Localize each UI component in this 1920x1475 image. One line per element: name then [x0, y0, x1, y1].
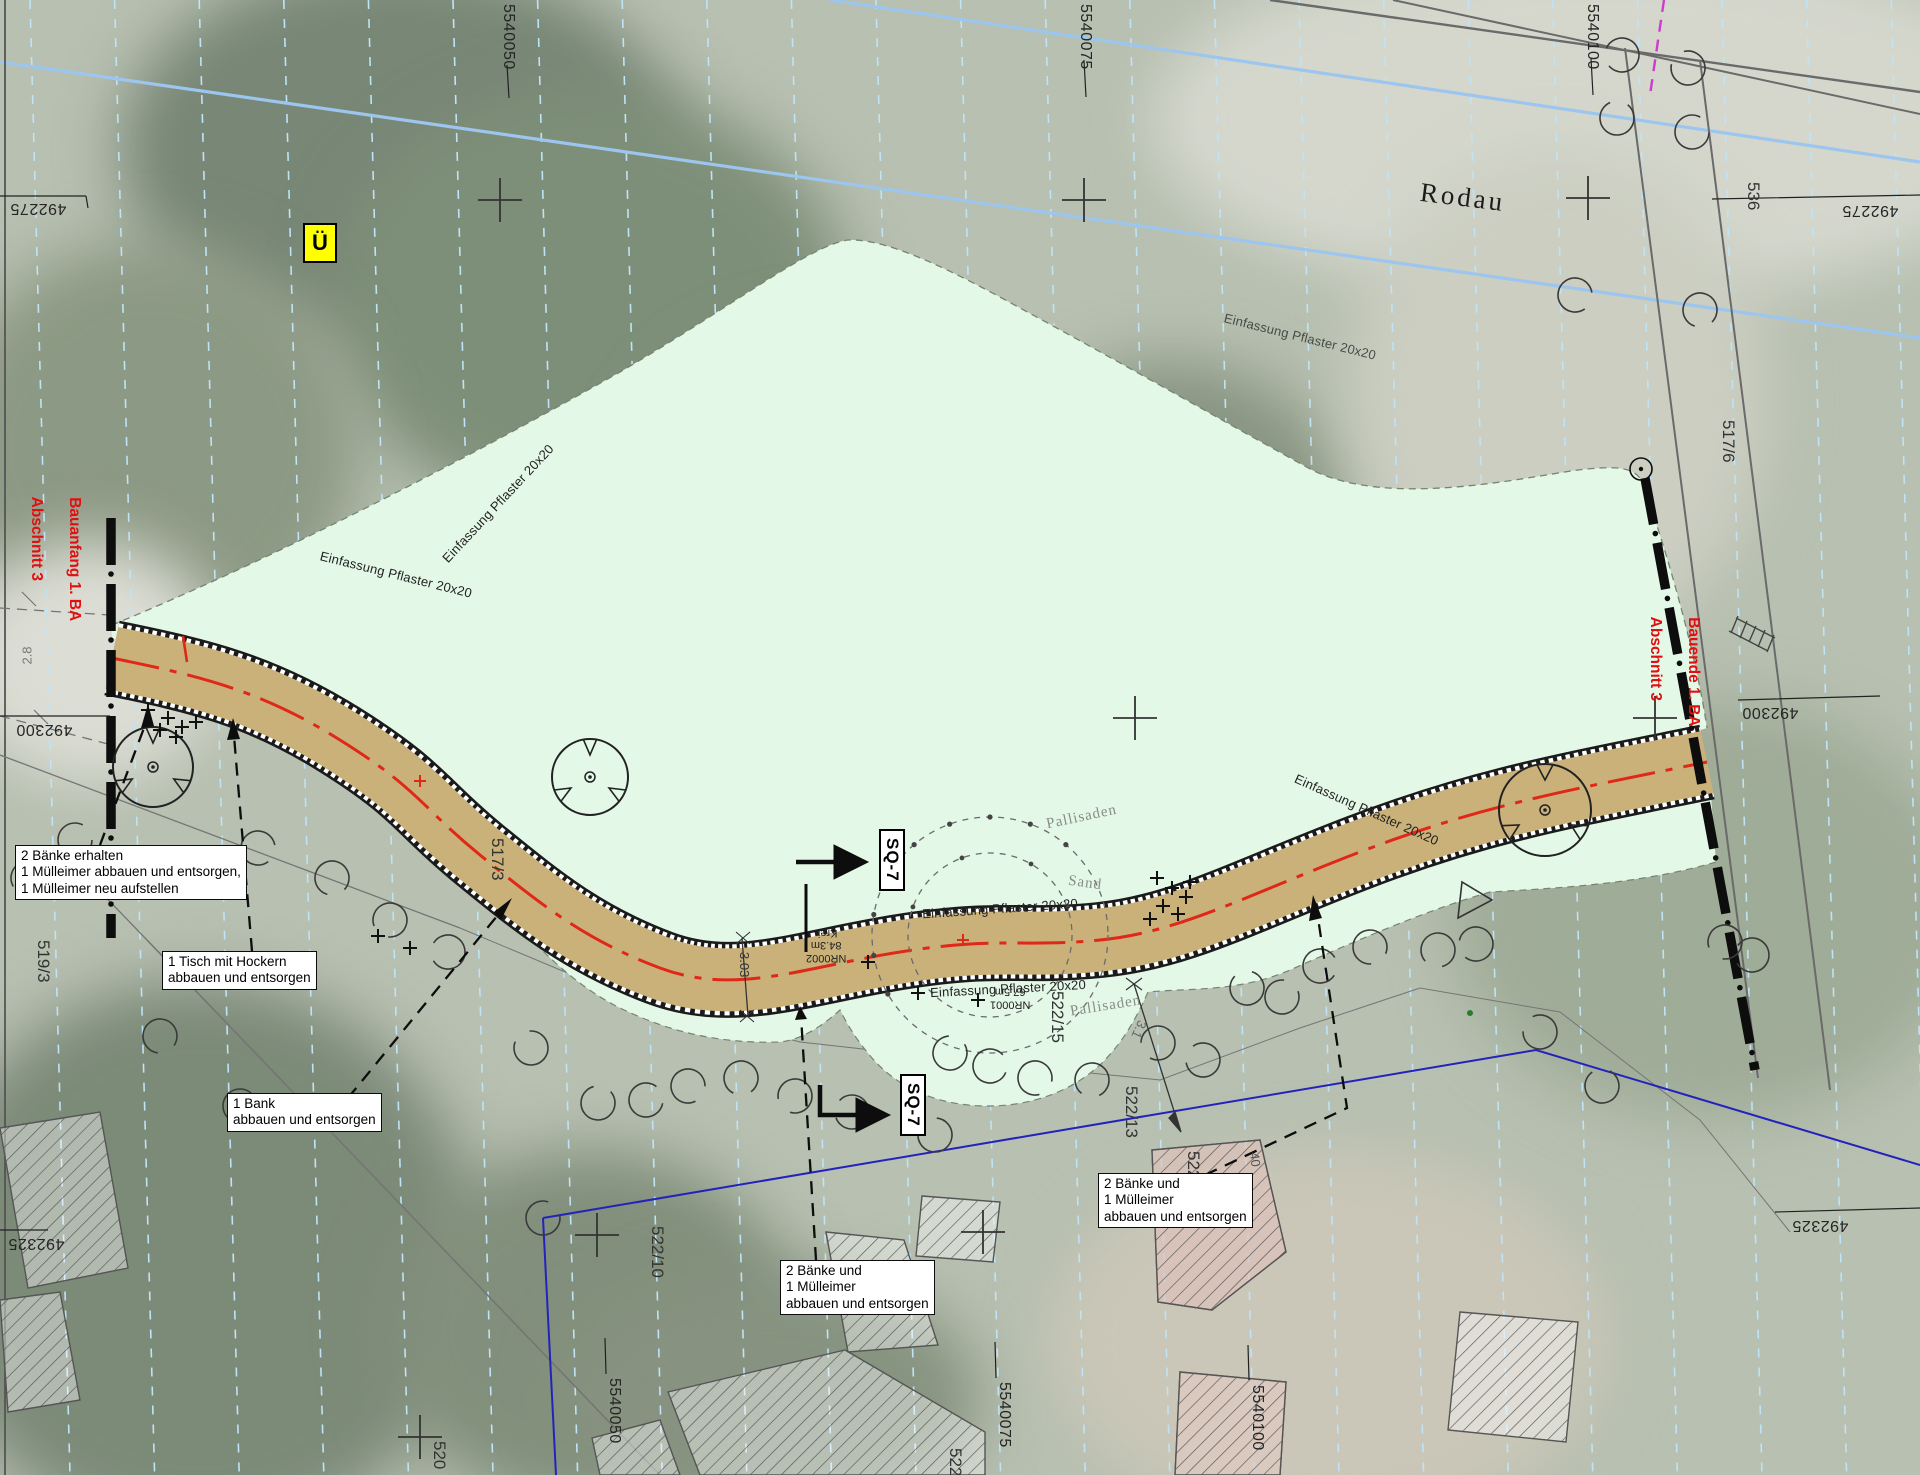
annotation-two-benches-a: 2 Bänke und 1 Mülleimer abbauen und ents…	[780, 1260, 935, 1315]
grid-label-right-492300: 492300	[1742, 703, 1798, 720]
segment-label-nr0001: NR0001 67.5m	[990, 985, 1030, 1010]
construction-end-line1: Bauende 1. BA	[1685, 617, 1702, 726]
annotation-table: 1 Tisch mit Hockern abbauen und entsorge…	[162, 951, 317, 990]
grid-label-bottom-5540050: 5540050	[605, 1378, 622, 1444]
dimension-2-8: 2.8	[20, 646, 35, 664]
building-number-40: 40	[1247, 1151, 1264, 1167]
site-plan-map: 5540050 5540075 5540100 5540050 5540075 …	[0, 0, 1920, 1475]
grid-label-top-5540075: 5540075	[1076, 4, 1093, 70]
plan-linework	[0, 0, 1920, 1475]
parcel-517-6: 517/6	[1719, 420, 1737, 463]
grid-label-top-5540050: 5540050	[499, 4, 516, 70]
segment-nr0002-type: Krei.	[806, 926, 846, 939]
parcel-517-3: 517/3	[488, 838, 506, 881]
sq7-section-label-1: SQ-7	[879, 829, 905, 891]
segment-nr0001-length: 67.5m	[990, 985, 1030, 998]
parcel-519-3: 519/3	[34, 940, 52, 983]
segment-label-nr0002: NR0002 84.3m Krei.	[806, 926, 846, 964]
construction-start-line2: Abschnitt 3	[28, 497, 45, 581]
parcel-520: 520	[430, 1441, 448, 1469]
parcel-522-13: 522/13	[1122, 1086, 1140, 1138]
segment-nr0002-length: 84.3m	[806, 939, 846, 952]
parcel-522-15: 522/15	[1048, 991, 1066, 1043]
grid-label-right-492275: 492275	[1842, 201, 1898, 218]
construction-start-line1: Bauanfang 1. BA	[66, 497, 83, 621]
grid-label-bottom-5540100: 5540100	[1248, 1385, 1265, 1451]
segment-nr0001-id: NR0001	[990, 998, 1030, 1011]
dimension-3-03: 3.03	[737, 952, 752, 977]
parcel-522-cut: 522	[946, 1448, 964, 1475]
parcel-536: 536	[1744, 182, 1762, 210]
grid-label-bottom-5540075: 5540075	[995, 1382, 1012, 1448]
section-reference-marker: Ü	[303, 223, 337, 263]
grid-label-left-492300: 492300	[16, 720, 72, 737]
annotation-bench: 1 Bank abbauen und entsorgen	[227, 1093, 382, 1132]
annotation-two-benches-b: 2 Bänke und 1 Mülleimer abbauen und ents…	[1098, 1173, 1253, 1228]
annotation-keep-benches: 2 Bänke erhalten 1 Mülleimer abbauen und…	[15, 845, 247, 900]
parcel-522-10: 522/10	[648, 1226, 666, 1278]
grid-label-right-492325: 492325	[1792, 1216, 1848, 1233]
segment-nr0002-id: NR0002	[806, 951, 846, 964]
sq7-section-label-2: SQ-7	[900, 1074, 926, 1136]
construction-end-line2: Abschnitt 3	[1647, 617, 1664, 701]
grid-label-top-5540100: 5540100	[1583, 4, 1600, 70]
grid-label-left-492325: 492325	[8, 1234, 64, 1251]
grid-label-left-492275: 492275	[10, 199, 66, 216]
construction-end-marker: Bauende 1. BA Abschnitt 3	[1627, 600, 1722, 727]
construction-start-marker: Bauanfang 1. BA Abschnitt 3	[8, 480, 103, 621]
